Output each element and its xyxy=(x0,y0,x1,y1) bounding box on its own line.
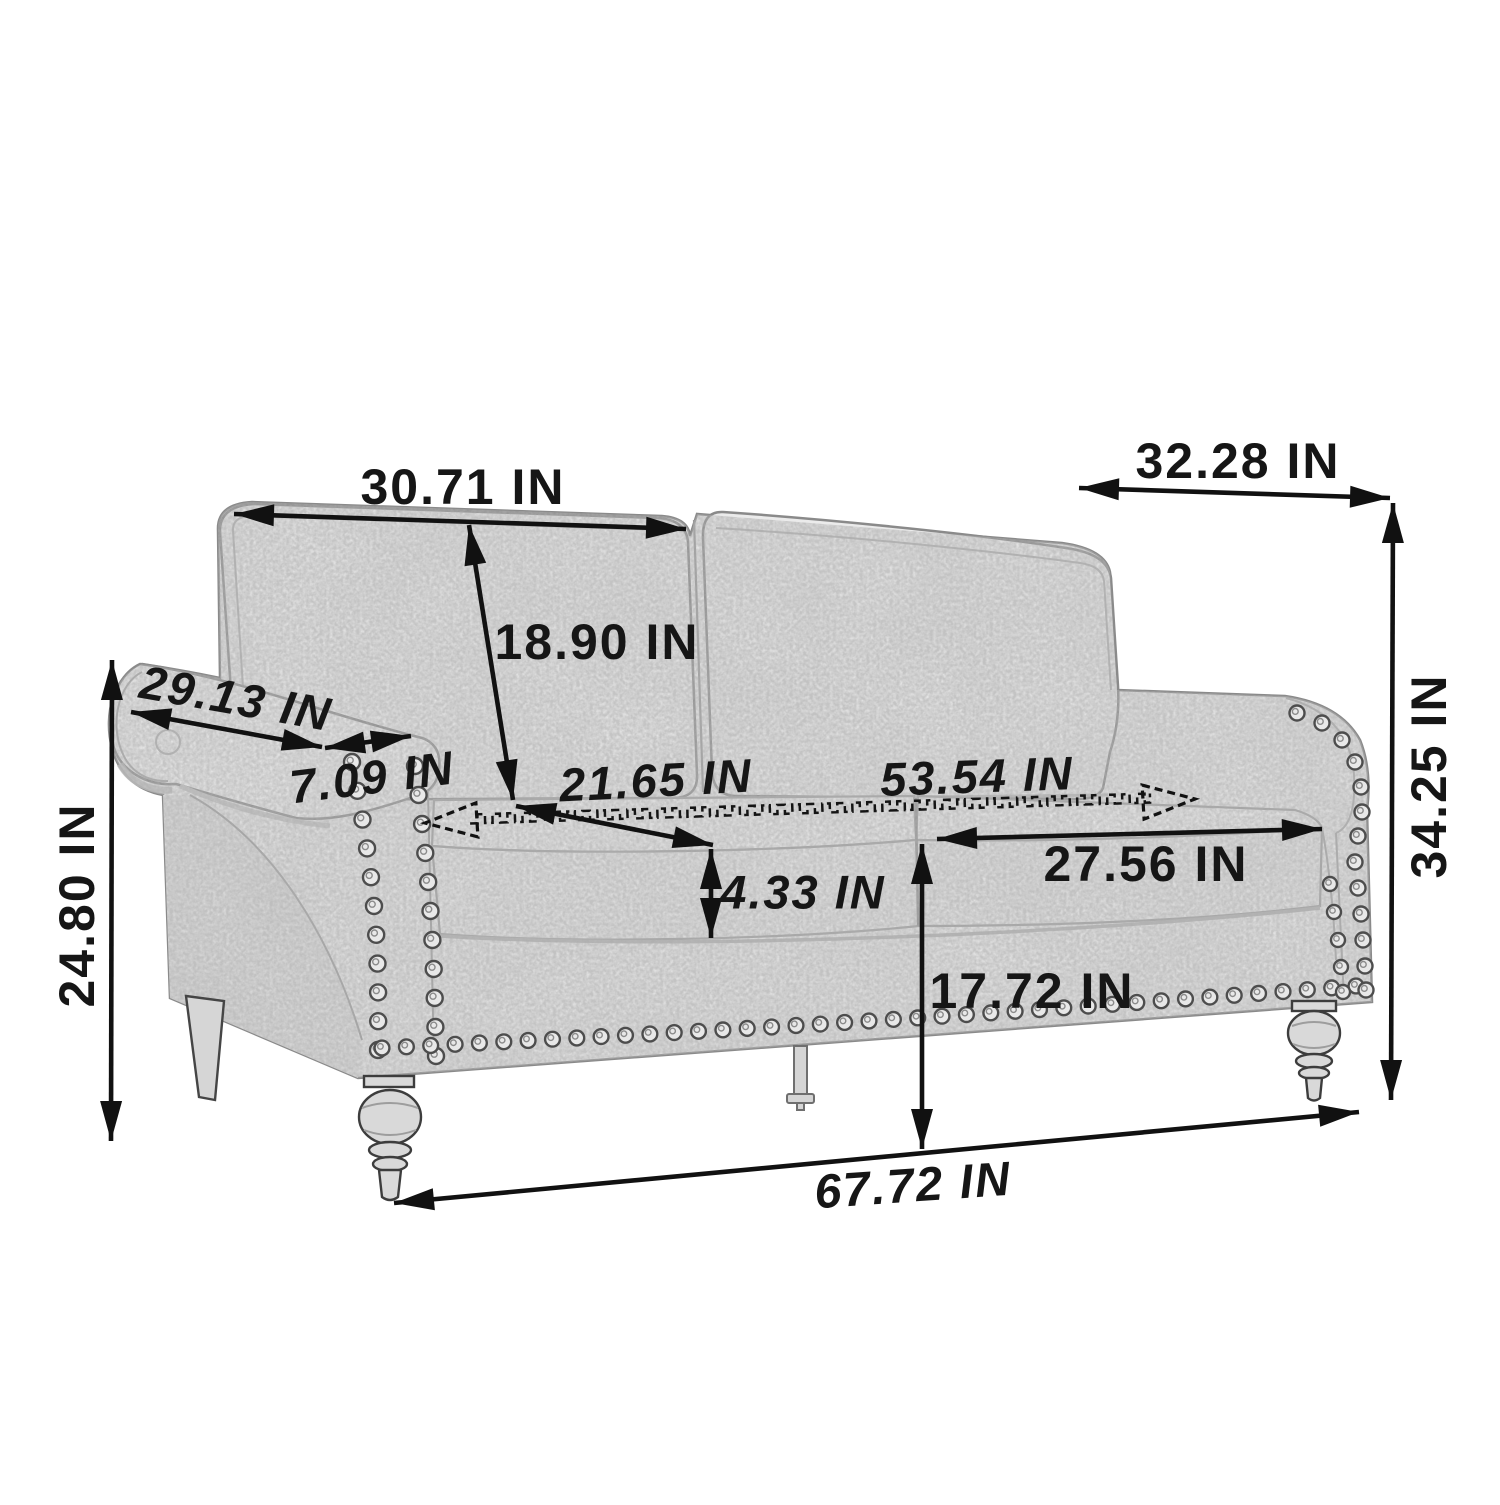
svg-text:21.65 IN: 21.65 IN xyxy=(557,748,754,811)
svg-text:30.71 IN: 30.71 IN xyxy=(360,459,565,515)
svg-text:17.72 IN: 17.72 IN xyxy=(929,963,1134,1019)
svg-text:53.54 IN: 53.54 IN xyxy=(879,746,1074,806)
svg-text:4.33 IN: 4.33 IN xyxy=(719,866,886,919)
svg-text:27.56 IN: 27.56 IN xyxy=(1043,836,1248,892)
svg-text:34.25 IN: 34.25 IN xyxy=(1401,673,1457,878)
svg-text:18.90 IN: 18.90 IN xyxy=(494,614,699,670)
svg-text:24.80 IN: 24.80 IN xyxy=(49,802,105,1007)
svg-text:32.28 IN: 32.28 IN xyxy=(1135,433,1340,489)
